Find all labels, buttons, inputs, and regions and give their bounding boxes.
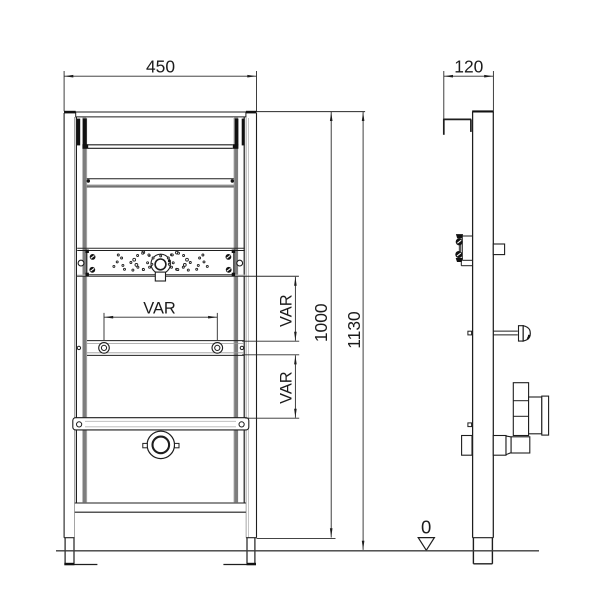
svg-text:1130: 1130 <box>344 311 364 348</box>
svg-text:0: 0 <box>421 516 431 537</box>
svg-text:VAR: VAR <box>277 294 295 327</box>
svg-text:120: 120 <box>454 56 483 76</box>
svg-text:450: 450 <box>146 56 175 76</box>
svg-text:VAR: VAR <box>143 299 176 317</box>
svg-text:1000: 1000 <box>311 303 331 342</box>
svg-text:VAR: VAR <box>277 371 295 404</box>
